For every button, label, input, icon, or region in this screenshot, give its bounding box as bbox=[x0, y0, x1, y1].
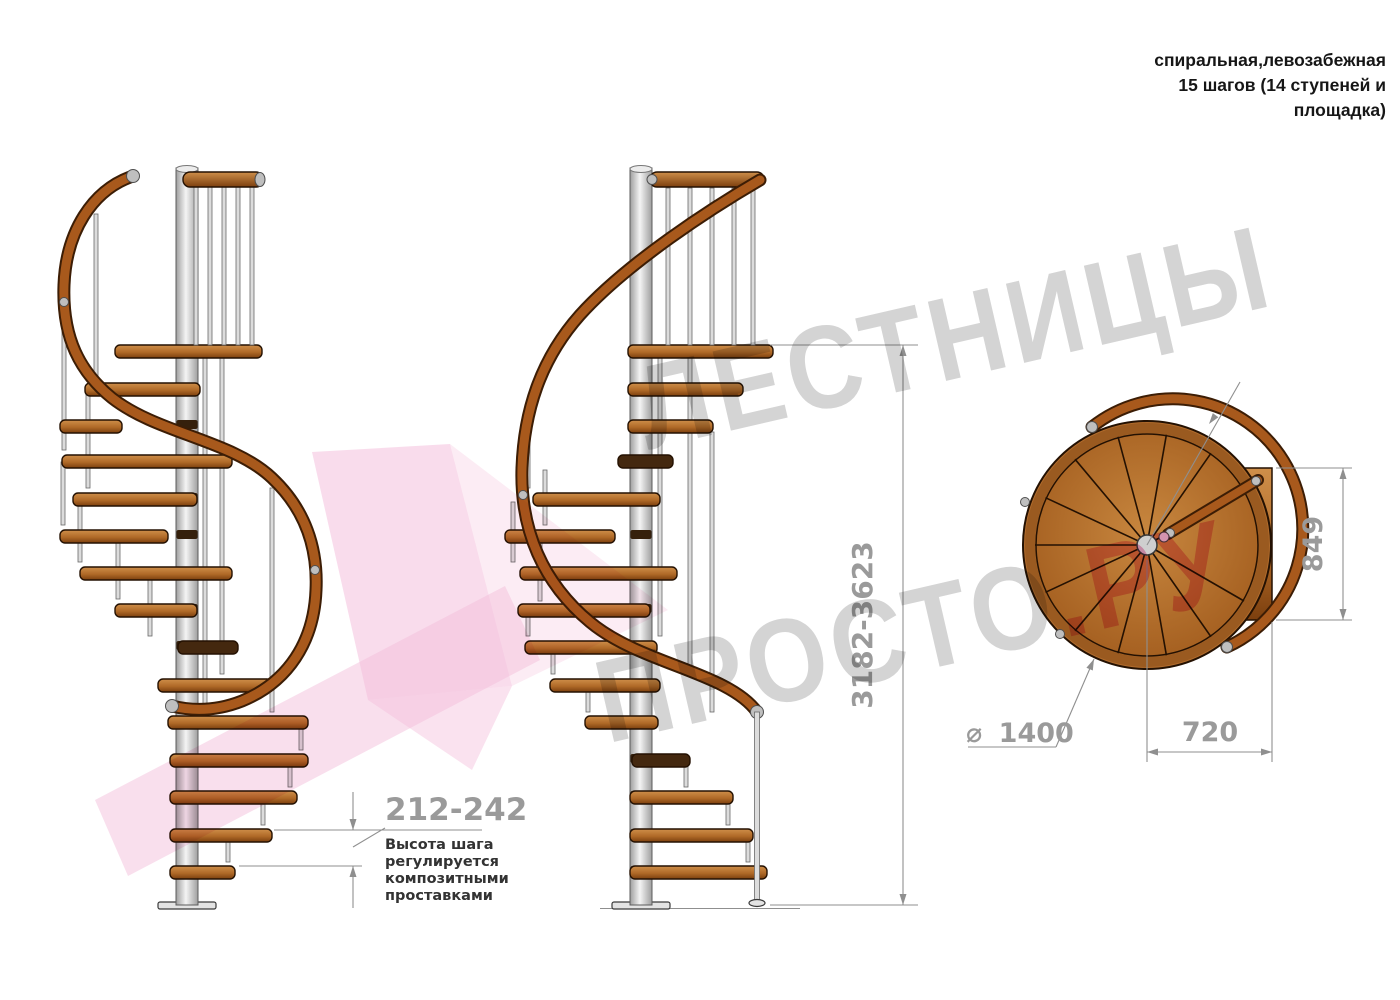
treads-middle bbox=[505, 345, 773, 879]
tread bbox=[170, 829, 272, 842]
handrail-joint bbox=[519, 491, 528, 500]
tread bbox=[170, 866, 235, 879]
diameter-symbol: ⌀ bbox=[966, 718, 982, 749]
total-height-value: 3182-3623 bbox=[846, 541, 879, 708]
dimension-total-height: 3182-3623 bbox=[770, 345, 918, 905]
note-line-3: композитными bbox=[385, 871, 509, 887]
note-line-1: Высота шага bbox=[385, 837, 494, 853]
tread bbox=[80, 567, 232, 580]
tread bbox=[170, 754, 308, 767]
tread bbox=[115, 604, 197, 617]
tread bbox=[505, 530, 615, 543]
elevation-view-left bbox=[60, 166, 320, 910]
plan-center-baluster bbox=[1159, 532, 1169, 542]
tread bbox=[632, 754, 690, 767]
elevation-view-middle bbox=[505, 166, 800, 910]
tread bbox=[550, 679, 660, 692]
tread bbox=[170, 791, 297, 804]
step-height-value: 212-242 bbox=[385, 792, 527, 828]
platform-tread bbox=[628, 345, 773, 358]
handrail-joint bbox=[60, 298, 69, 307]
tread bbox=[60, 530, 168, 543]
tread bbox=[630, 829, 753, 842]
landing-depth-value: 849 bbox=[1298, 516, 1329, 572]
tread bbox=[178, 641, 238, 654]
tread bbox=[73, 493, 197, 506]
tread bbox=[628, 383, 743, 396]
handrail-joint bbox=[311, 566, 320, 575]
spiral-staircase-drawing: 212-242 Высота шага регулируется компози… bbox=[0, 0, 1400, 1000]
note-line-4: проставками bbox=[385, 888, 493, 904]
tread bbox=[628, 420, 713, 433]
diameter-label: ⌀ 1400 bbox=[966, 718, 1074, 749]
tread bbox=[60, 420, 122, 433]
plan-view bbox=[1021, 399, 1303, 669]
handrail-post bbox=[755, 712, 760, 902]
tread bbox=[533, 493, 660, 506]
tread bbox=[585, 716, 658, 729]
diameter-value: 1400 bbox=[999, 718, 1074, 749]
platform-tread bbox=[115, 345, 262, 358]
dimension-step-height: 212-242 Высота шага регулируется компози… bbox=[239, 792, 527, 908]
tread bbox=[618, 455, 673, 468]
tread bbox=[62, 455, 232, 468]
handrail-end-cap bbox=[127, 170, 140, 183]
tread bbox=[168, 716, 308, 729]
platform-railing-left bbox=[183, 172, 265, 345]
technical-drawing-page: 212-242 Высота шага регулируется компози… bbox=[0, 0, 1400, 1000]
column-cap bbox=[630, 166, 652, 173]
platform-handrail bbox=[183, 172, 263, 187]
handrail-end-cap bbox=[166, 700, 179, 713]
platform-railing-middle bbox=[647, 172, 764, 345]
tread bbox=[630, 866, 767, 879]
landing-width-value: 720 bbox=[1182, 717, 1238, 748]
note-line-2: регулируется bbox=[385, 854, 499, 870]
tread bbox=[630, 791, 733, 804]
dimension-diameter: ⌀ 1400 bbox=[966, 659, 1094, 749]
post-foot bbox=[749, 900, 765, 907]
